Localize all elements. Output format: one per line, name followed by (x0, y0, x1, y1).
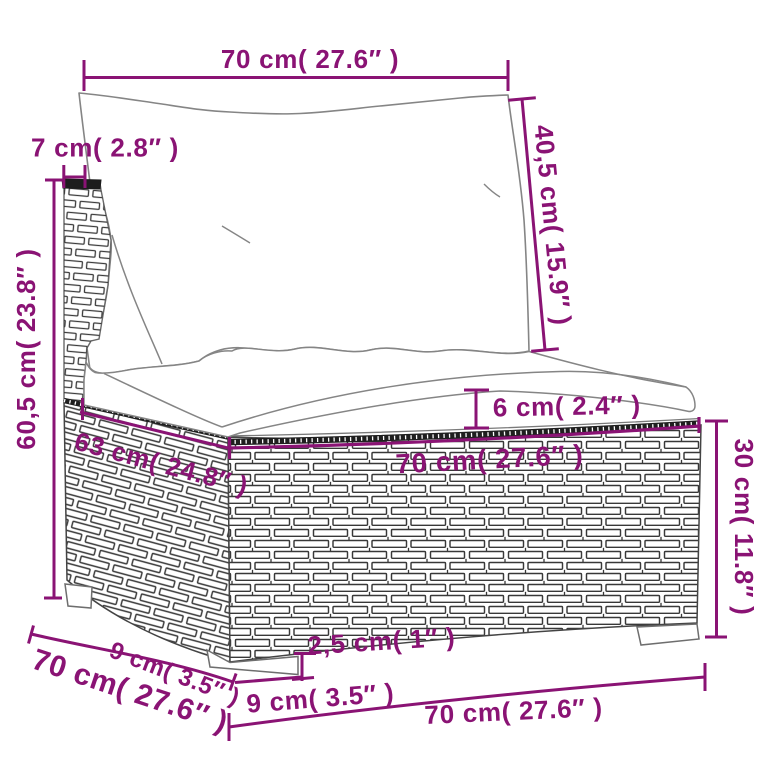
svg-text:70 cm( 27.6″ ): 70 cm( 27.6″ ) (221, 44, 399, 74)
svg-text:7 cm( 2.8″ ): 7 cm( 2.8″ ) (31, 133, 179, 163)
svg-text:60,5 cm( 23.8″ ): 60,5 cm( 23.8″ ) (11, 248, 41, 449)
svg-text:6 cm( 2.4″ ): 6 cm( 2.4″ ) (492, 389, 641, 422)
svg-text:30 cm( 11.8″ ): 30 cm( 11.8″ ) (729, 439, 759, 616)
